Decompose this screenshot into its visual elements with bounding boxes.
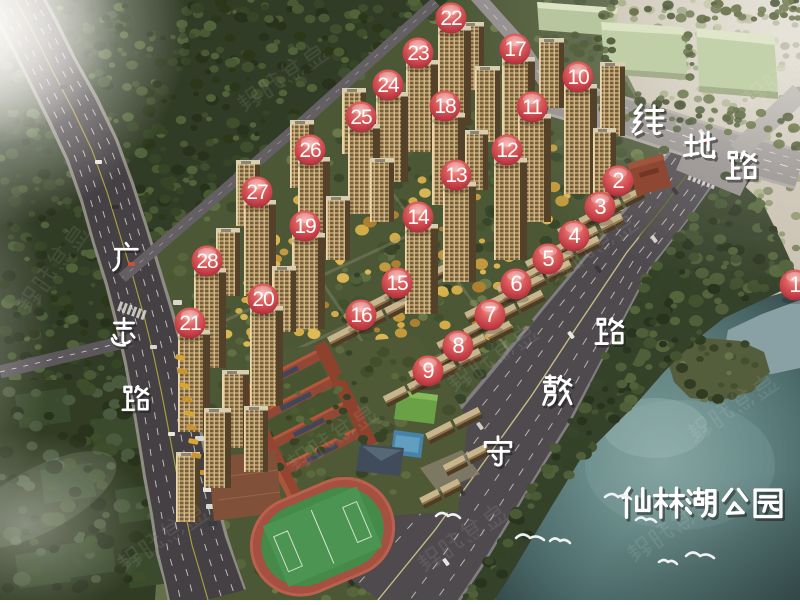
svg-text:28: 28	[196, 250, 218, 273]
svg-text:15: 15	[386, 272, 408, 295]
svg-text:27: 27	[246, 181, 268, 204]
svg-text:14: 14	[407, 206, 430, 229]
svg-text:6: 6	[510, 271, 522, 296]
svg-text:3: 3	[594, 194, 606, 219]
svg-text:23: 23	[407, 42, 429, 65]
svg-text:9: 9	[422, 358, 434, 383]
svg-text:7: 7	[484, 302, 496, 327]
svg-text:2: 2	[612, 168, 624, 193]
svg-text:24: 24	[377, 74, 400, 97]
svg-text:21: 21	[179, 312, 201, 335]
svg-text:8: 8	[452, 333, 464, 358]
svg-text:13: 13	[445, 164, 467, 187]
svg-text:22: 22	[440, 7, 462, 30]
svg-text:19: 19	[294, 215, 316, 238]
svg-text:4: 4	[568, 223, 580, 248]
svg-text:5: 5	[542, 246, 554, 271]
svg-text:17: 17	[504, 38, 526, 61]
svg-text:18: 18	[434, 95, 456, 118]
svg-text:20: 20	[252, 288, 274, 311]
svg-text:1: 1	[789, 272, 800, 297]
svg-text:10: 10	[567, 66, 589, 89]
svg-text:12: 12	[496, 139, 518, 162]
svg-text:25: 25	[350, 106, 372, 129]
svg-text:11: 11	[522, 96, 542, 119]
svg-text:26: 26	[299, 139, 321, 162]
svg-text:16: 16	[350, 304, 372, 327]
